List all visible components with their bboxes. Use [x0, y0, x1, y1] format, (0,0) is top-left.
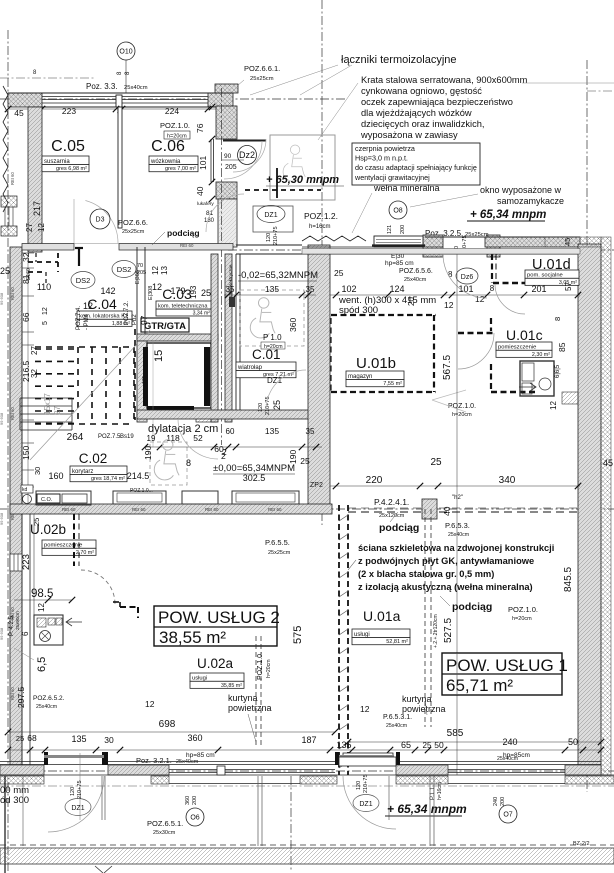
svg-text:7,55 m²: 7,55 m² — [383, 381, 402, 387]
svg-text:30: 30 — [33, 467, 42, 475]
svg-text:z podwójnych płyt GK, antywłam: z podwójnych płyt GK, antywłamaniowe — [358, 556, 534, 566]
svg-text:120: 120 — [266, 233, 272, 242]
svg-text:P.6.5.3.1.: P.6.5.3.1. — [383, 714, 412, 721]
svg-text:205: 205 — [204, 375, 210, 384]
svg-text:118: 118 — [166, 433, 180, 443]
svg-text:- PM4: - PM4 — [84, 313, 90, 330]
svg-text:12: 12 — [37, 223, 46, 232]
svg-text:DS2: DS2 — [76, 276, 91, 285]
svg-text:E|308: E|308 — [135, 270, 141, 284]
svg-text:U.02b: U.02b — [30, 522, 66, 537]
svg-text:POZ.6.5.1.: POZ.6.5.1. — [147, 819, 183, 828]
svg-text:usługi: usługi — [192, 676, 207, 682]
svg-text:25x25cm: 25x25cm — [250, 76, 274, 82]
svg-text:wentylacji grawitacyjnej: wentylacji grawitacyjnej — [354, 173, 430, 182]
svg-text:142: 142 — [100, 286, 115, 296]
svg-text:wiatrołap: wiatrołap — [237, 365, 263, 371]
svg-text:do czasu adaptacji spełniający: do czasu adaptacji spełniający funkcję — [355, 163, 477, 172]
svg-text:POZ.6.6.1.: POZ.6.6.1. — [244, 64, 280, 73]
svg-text:Dz6: Dz6 — [461, 274, 474, 281]
svg-text:z izolacją akustyczną (wełna m: z izolacją akustyczną (wełna mineralna) — [358, 582, 533, 592]
svg-text:+ 65,34 mnpm: + 65,34 mnpm — [470, 209, 546, 221]
svg-text:297.5: 297.5 — [16, 686, 26, 708]
svg-text:45: 45 — [603, 458, 613, 468]
svg-text:P.6.5.3.: P.6.5.3. — [445, 521, 470, 530]
svg-text:200: 200 — [192, 796, 198, 805]
svg-text:240: 240 — [502, 737, 517, 747]
svg-text:pomieszczenie: pomieszczenie — [44, 543, 82, 549]
svg-text:Hsp=3,0 m n.p.t.: Hsp=3,0 m n.p.t. — [355, 154, 408, 163]
svg-text:25: 25 — [272, 400, 282, 410]
svg-text:8: 8 — [448, 270, 453, 279]
svg-text:kurtyna: kurtyna — [228, 693, 258, 703]
svg-text:h=20cm: h=20cm — [266, 659, 272, 678]
svg-text:99 608: 99 608 — [0, 412, 4, 425]
svg-text:38,55 m²: 38,55 m² — [159, 628, 226, 647]
svg-text:C.O.: C.O. — [41, 497, 53, 503]
svg-text:25x40cm: 25x40cm — [386, 723, 407, 729]
svg-text:U.01c: U.01c — [506, 327, 543, 343]
svg-text:99 608: 99 608 — [0, 512, 4, 525]
svg-text:200: 200 — [400, 225, 406, 234]
svg-text:hp=85 cm: hp=85 cm — [385, 260, 414, 267]
svg-text:P.1.1.: P.1.1. — [430, 785, 436, 800]
svg-text:REI 60: REI 60 — [180, 243, 194, 248]
svg-text:264: 264 — [67, 432, 84, 443]
svg-text:223: 223 — [21, 554, 32, 570]
svg-text:2: 2 — [222, 447, 227, 457]
svg-text:8: 8 — [186, 458, 191, 468]
svg-text:15x17: 15x17 — [43, 393, 52, 415]
svg-text:210+75: 210+75 — [273, 226, 279, 245]
svg-text:25x25cm: 25x25cm — [268, 550, 291, 556]
svg-text:E|308: E|308 — [148, 286, 154, 300]
svg-text:220: 220 — [366, 475, 383, 486]
svg-text:210+75: 210+75 — [363, 774, 369, 793]
svg-text:15: 15 — [153, 350, 165, 362]
svg-text:powietrzna: powietrzna — [228, 703, 272, 713]
svg-text:DZ1: DZ1 — [264, 212, 277, 219]
svg-text:5: 5 — [42, 321, 49, 325]
svg-text:65: 65 — [401, 740, 411, 750]
svg-text:68: 68 — [27, 733, 37, 743]
svg-text:lukafery: lukafery — [197, 201, 214, 207]
svg-text:40: 40 — [442, 506, 452, 516]
svg-text:dziecięcych oraz inwalidzkich,: dziecięcych oraz inwalidzkich, — [361, 119, 485, 129]
svg-text:110: 110 — [37, 282, 51, 292]
svg-text:66: 66 — [21, 312, 31, 322]
svg-text:25: 25 — [300, 456, 310, 466]
svg-text:Poz. 3.3.: Poz. 3.3. — [86, 82, 118, 91]
svg-text:hp=85 cm: hp=85 cm — [186, 752, 215, 759]
svg-text:224: 224 — [165, 106, 179, 116]
svg-text:REI 60: REI 60 — [10, 687, 15, 700]
svg-text:gres 7,00 m²: gres 7,00 m² — [165, 166, 196, 172]
svg-text:70: 70 — [137, 263, 143, 269]
svg-text:Poz. 3.2.1.: Poz. 3.2.1. — [136, 756, 172, 765]
svg-text:POZ.6.6.: POZ.6.6. — [118, 218, 148, 227]
svg-text:240: 240 — [493, 797, 499, 806]
svg-text:12: 12 — [37, 603, 46, 612]
svg-text:135: 135 — [71, 734, 86, 744]
svg-text:124: 124 — [389, 284, 404, 294]
svg-text:135: 135 — [265, 284, 279, 294]
svg-text:Dz2: Dz2 — [239, 150, 255, 160]
svg-text:C.02: C.02 — [79, 451, 108, 466]
svg-text:C.03: C.03 — [162, 286, 192, 302]
svg-text:50: 50 — [568, 737, 578, 747]
svg-text:12: 12 — [42, 307, 49, 315]
svg-text:suszarnia: suszarnia — [44, 159, 70, 165]
svg-text:ściana szkieletowa na zdwojone: ściana szkieletowa na zdwojonej konstruk… — [358, 543, 554, 553]
svg-text:175: 175 — [142, 375, 148, 384]
svg-text:200: 200 — [500, 797, 506, 806]
svg-text:120: 120 — [70, 787, 76, 796]
svg-text:302.5: 302.5 — [243, 473, 266, 483]
svg-text:podciąg: podciąg — [452, 601, 492, 613]
svg-text:12: 12 — [549, 401, 558, 410]
svg-text:120: 120 — [258, 403, 264, 412]
svg-text:kurtyna: kurtyna — [402, 694, 432, 704]
svg-text:30: 30 — [104, 735, 114, 745]
svg-text:U.02a: U.02a — [197, 656, 234, 671]
svg-text:magazyn: magazyn — [348, 374, 372, 380]
svg-text:210+75: 210+75 — [77, 780, 83, 799]
svg-text:P.6.5.5.: P.6.5.5. — [265, 538, 290, 547]
svg-text:DZ1: DZ1 — [359, 801, 372, 808]
svg-text:360: 360 — [187, 733, 202, 743]
svg-text:13: 13 — [160, 266, 169, 275]
svg-text:585: 585 — [447, 728, 464, 739]
svg-text:575: 575 — [292, 626, 304, 644]
svg-text:8: 8 — [490, 284, 495, 293]
svg-text:dylatacja 2 cm: dylatacja 2 cm — [148, 423, 218, 435]
svg-text:180: 180 — [204, 218, 215, 224]
svg-text:99 608: 99 608 — [0, 627, 4, 640]
svg-text:P.4.2.4.1.: P.4.2.4.1. — [374, 497, 409, 507]
svg-text:135: 135 — [265, 426, 279, 436]
svg-text:25: 25 — [16, 734, 24, 743]
svg-text:12: 12 — [444, 300, 454, 310]
svg-text:ód 300: ód 300 — [0, 795, 29, 806]
svg-text:czerpnia powietrza: czerpnia powietrza — [355, 144, 415, 153]
svg-text:pomieszczenie: pomieszczenie — [498, 345, 536, 351]
svg-text:wyposażona w zawiasy: wyposażona w zawiasy — [360, 130, 458, 140]
svg-text:REI 60: REI 60 — [62, 507, 76, 512]
svg-text:POZ.1.0.: POZ.1.0. — [257, 652, 264, 680]
svg-text:POZ.7.5.: POZ.7.5. — [98, 434, 122, 440]
svg-text:52: 52 — [193, 433, 203, 443]
svg-text:samozamykacze: samozamykacze — [497, 196, 564, 206]
svg-text:REI 60: REI 60 — [10, 287, 15, 300]
svg-text:gres 6,98 m²: gres 6,98 m² — [56, 166, 87, 172]
svg-text:52,81 m²: 52,81 m² — [386, 639, 408, 645]
svg-text:135: 135 — [336, 740, 351, 750]
svg-text:POW. USŁUG 2: POW. USŁUG 2 — [158, 608, 280, 627]
svg-text:97: 97 — [139, 315, 149, 325]
svg-text:REI 60: REI 60 — [10, 407, 15, 420]
svg-text:25x30cm: 25x30cm — [153, 830, 176, 836]
svg-text:REI 60: REI 60 — [268, 507, 282, 512]
svg-text:214.5: 214.5 — [127, 471, 150, 481]
svg-text:gres 18,74 m²: gres 18,74 m² — [91, 476, 125, 482]
svg-text:8: 8 — [553, 317, 562, 321]
svg-text:łączniki termoizolacyjne: łączniki termoizolacyjne — [341, 54, 457, 66]
svg-text:korytarz: korytarz — [72, 469, 93, 475]
svg-text:25x40cm: 25x40cm — [497, 756, 518, 762]
svg-text:h=16cm: h=16cm — [437, 782, 443, 800]
svg-text:12: 12 — [475, 294, 485, 304]
svg-text:25: 25 — [423, 741, 432, 750]
svg-text:6,5: 6,5 — [36, 657, 48, 672]
svg-text:201: 201 — [531, 284, 546, 294]
svg-text:Krata stalowa serratowana, 900: Krata stalowa serratowana, 900x600mm — [361, 75, 528, 85]
svg-text:223: 223 — [62, 106, 76, 116]
svg-text:pom. socjalne: pom. socjalne — [527, 273, 563, 279]
svg-text:h=20cm: h=20cm — [452, 412, 472, 418]
svg-text:3,34 m²: 3,34 m² — [193, 310, 211, 316]
svg-text:O7: O7 — [503, 812, 512, 819]
svg-text:C.06: C.06 — [151, 138, 185, 155]
svg-text:27: 27 — [53, 406, 62, 415]
svg-text:25x40cm: 25x40cm — [448, 532, 469, 538]
svg-text:okno wyposażone w: okno wyposażone w — [480, 185, 562, 195]
svg-text:340: 340 — [499, 475, 516, 486]
svg-text:h=20cm: h=20cm — [167, 134, 187, 140]
svg-text:wełna mineralna: wełna mineralna — [373, 183, 440, 193]
svg-text:567.5: 567.5 — [442, 355, 453, 380]
svg-text:D3: D3 — [96, 217, 105, 224]
svg-text:150: 150 — [21, 446, 31, 460]
svg-text:845.5: 845.5 — [563, 567, 574, 592]
svg-text:32: 32 — [21, 252, 31, 262]
svg-text:360: 360 — [288, 318, 298, 332]
svg-text:19: 19 — [147, 434, 156, 443]
svg-text:"h2": "h2" — [452, 495, 463, 501]
svg-text:76: 76 — [195, 123, 205, 133]
svg-text:O6: O6 — [190, 815, 199, 822]
svg-text:25: 25 — [0, 266, 10, 276]
svg-text:POW. USŁUG 1: POW. USŁUG 1 — [446, 656, 568, 675]
svg-text:REI 60: REI 60 — [205, 507, 219, 512]
svg-text:25x40cm: 25x40cm — [36, 704, 57, 710]
svg-text:216.5: 216.5 — [21, 360, 31, 382]
svg-text:ZP2: ZP2 — [310, 482, 323, 489]
svg-text:40: 40 — [195, 186, 205, 196]
svg-text:2,30 m²: 2,30 m² — [532, 352, 550, 358]
svg-text:12: 12 — [145, 699, 155, 709]
svg-text:POZ.7.2.: POZ.7.2. — [124, 301, 130, 325]
svg-text:25x40cm: 25x40cm — [404, 277, 427, 283]
svg-text:Pb2: Pb2 — [132, 314, 138, 325]
svg-text:25: 25 — [430, 457, 442, 468]
svg-text:6: 6 — [21, 631, 30, 636]
svg-text:81: 81 — [21, 274, 31, 284]
svg-text:POZ.6.5.6.: POZ.6.5.6. — [399, 268, 433, 275]
svg-text:35,85 m²: 35,85 m² — [221, 683, 242, 689]
svg-text:wózkownia: wózkownia — [150, 159, 181, 165]
svg-text:12: 12 — [151, 266, 160, 275]
svg-text:REI 60: REI 60 — [132, 507, 146, 512]
svg-text:50: 50 — [434, 740, 444, 750]
svg-text:C.01: C.01 — [252, 347, 281, 362]
svg-text:25x25cm: 25x25cm — [122, 229, 145, 235]
svg-text:powietrzna: powietrzna — [402, 704, 446, 714]
svg-text:25x120cm: 25x120cm — [379, 513, 405, 519]
svg-text:27: 27 — [25, 223, 34, 232]
svg-text:U.01b: U.01b — [356, 355, 396, 372]
svg-text:C.04: C.04 — [87, 296, 117, 312]
svg-text:DZ1: DZ1 — [267, 376, 283, 385]
svg-text:(2 x blacha stalowa gr. 0,5 mm: (2 x blacha stalowa gr. 0,5 mm) — [358, 569, 494, 579]
svg-text:+ 65,34 mnpm: + 65,34 mnpm — [387, 802, 467, 816]
svg-text:25: 25 — [201, 288, 211, 298]
svg-text:POZ.1.2.: POZ.1.2. — [304, 211, 338, 221]
svg-text:45: 45 — [563, 238, 572, 246]
svg-text:45: 45 — [14, 108, 24, 118]
svg-text:12: 12 — [360, 704, 370, 714]
svg-text:20: 20 — [407, 297, 416, 306]
svg-text:85: 85 — [557, 342, 567, 352]
svg-text:190: 190 — [288, 450, 298, 464]
svg-text:360: 360 — [185, 796, 191, 805]
svg-text:60: 60 — [226, 427, 235, 436]
svg-text:102: 102 — [341, 284, 356, 294]
svg-text:POZ.7.4.: POZ.7.4. — [76, 306, 82, 330]
svg-text:O8: O8 — [393, 208, 402, 215]
svg-text:120: 120 — [356, 781, 362, 790]
svg-text:90: 90 — [224, 153, 232, 160]
svg-text:REI 60: REI 60 — [10, 172, 15, 185]
svg-text:O10: O10 — [119, 49, 132, 56]
svg-text:99 608: 99 608 — [0, 292, 4, 305]
svg-text:160: 160 — [48, 471, 63, 481]
svg-text:GTR/GTA: GTR/GTA — [144, 321, 186, 332]
svg-text:Bs19: Bs19 — [120, 434, 134, 440]
svg-text:65,71 m²: 65,71 m² — [446, 676, 513, 695]
svg-text:BZ-2/2: BZ-2/2 — [573, 841, 590, 847]
svg-text:6|6|5: 6|6|5 — [555, 364, 561, 378]
svg-text:oczek zapewniająca bezpieczeńs: oczek zapewniająca bezpieczeństwo — [361, 97, 513, 107]
svg-text:25: 25 — [334, 268, 344, 278]
svg-text:usługi: usługi — [354, 632, 370, 638]
svg-text:698: 698 — [159, 719, 176, 730]
svg-text:57: 57 — [564, 282, 573, 291]
svg-text:kom. teletechniczna: kom. teletechniczna — [158, 303, 208, 309]
svg-text:101: 101 — [198, 156, 208, 170]
svg-text:DS2: DS2 — [117, 265, 132, 274]
svg-text:205: 205 — [225, 164, 237, 171]
svg-text:szafki elektryczne: szafki elektryczne — [228, 264, 233, 300]
svg-text:cynkowana ogniowo, gęstość: cynkowana ogniowo, gęstość — [361, 86, 482, 96]
svg-text:187: 187 — [301, 735, 316, 745]
svg-text:217: 217 — [32, 201, 42, 216]
svg-text:121: 121 — [387, 225, 393, 234]
svg-text:U.01a: U.01a — [363, 608, 401, 624]
svg-text:podciąg: podciąg — [379, 522, 419, 534]
svg-text:35: 35 — [306, 427, 315, 436]
svg-text:POZ.1.0.: POZ.1.0. — [508, 605, 538, 614]
svg-text:kd: kd — [22, 487, 28, 493]
svg-text:+.2.+.2tr120cm: +.2.+.2tr120cm — [433, 614, 439, 648]
svg-text:P 1.0: P 1.0 — [263, 333, 282, 342]
svg-text:POZ.1.0.: POZ.1.0. — [160, 121, 190, 130]
svg-text:POZ.1.0.: POZ.1.0. — [448, 403, 476, 410]
svg-text:h=20cm: h=20cm — [512, 616, 532, 622]
svg-text:527.5: 527.5 — [443, 618, 454, 643]
svg-text:C.05: C.05 — [51, 138, 85, 155]
svg-text:podciąg: podciąg — [167, 228, 200, 238]
svg-text:POZ.6.5.2.: POZ.6.5.2. — [33, 695, 65, 702]
svg-text:25x40cm: 25x40cm — [124, 85, 148, 91]
svg-text:h=16cm: h=16cm — [309, 224, 331, 230]
svg-text:25x90cm: 25x90cm — [15, 611, 20, 630]
svg-text:DZ1: DZ1 — [71, 805, 84, 812]
svg-text:dla wjeżdżających wózków: dla wjeżdżających wózków — [361, 108, 472, 118]
svg-text:-0,02=65,32MNPM: -0,02=65,32MNPM — [238, 270, 318, 281]
